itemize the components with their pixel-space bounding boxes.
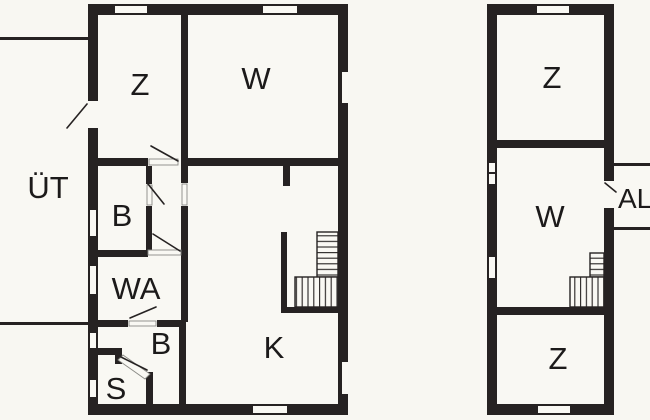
balcony-top-line [614, 163, 650, 166]
wall-segment [98, 250, 148, 257]
wall-segment [146, 206, 152, 252]
window [263, 6, 297, 13]
wall-segment [181, 206, 188, 322]
room-label-b-upper: B [112, 198, 133, 233]
stairs-upper-run [590, 253, 604, 277]
room-label-z-bottom: Z [549, 341, 568, 376]
room-label-s: S [106, 371, 127, 406]
room-label-b-lower: B [151, 326, 172, 361]
stair-enclosure-wall [281, 307, 338, 313]
balcony-bottom-line [614, 227, 650, 230]
wall-segment [487, 4, 497, 415]
room-label-w: W [241, 61, 271, 96]
room-label-w: W [535, 199, 565, 234]
room-label-uet: ÜT [27, 170, 68, 205]
stairs-upper-run [317, 232, 338, 277]
wall-segment [88, 404, 348, 415]
terrace-top-line [0, 37, 88, 40]
stairs-lower-run [295, 277, 338, 307]
window [115, 6, 147, 13]
right-floor-plan: Z W AL Z [487, 4, 650, 415]
window-mullion [489, 172, 495, 174]
door-opening [604, 181, 614, 208]
wall-segment [98, 320, 128, 327]
wall-segment [181, 15, 188, 183]
door-leaf [182, 184, 187, 205]
wall-segment [88, 4, 98, 415]
wall-segment [146, 166, 152, 184]
wall-segment [179, 322, 186, 404]
window [90, 210, 96, 236]
terrace-bottom-line [0, 322, 88, 325]
wall-segment [497, 307, 604, 315]
door-opening [88, 101, 98, 128]
door-leaf [149, 159, 178, 165]
wall-segment [497, 140, 604, 148]
window [342, 72, 348, 103]
room-label-k: K [264, 330, 285, 365]
stairs-lower-run [570, 277, 604, 307]
window [538, 406, 570, 413]
wall-segment [188, 158, 338, 166]
wall-segment [283, 166, 290, 186]
window [253, 406, 287, 413]
wall-segment [604, 4, 614, 415]
window [90, 380, 96, 397]
window [537, 6, 569, 13]
door-leaf [148, 250, 181, 255]
floor-plan-drawing: Z W ÜT B WA B S K [0, 0, 650, 420]
room-label-al: AL [618, 183, 650, 214]
window [342, 362, 348, 394]
window [90, 266, 96, 294]
room-label-z: Z [131, 67, 150, 102]
window [489, 257, 495, 278]
room-label-z-top: Z [543, 60, 562, 95]
room-label-wa: WA [112, 271, 161, 306]
left-floor-plan: Z W ÜT B WA B S K [0, 4, 348, 415]
window [90, 333, 96, 348]
wall-segment [98, 158, 148, 166]
wall-segment [338, 4, 348, 415]
stair-enclosure-wall [281, 232, 287, 313]
